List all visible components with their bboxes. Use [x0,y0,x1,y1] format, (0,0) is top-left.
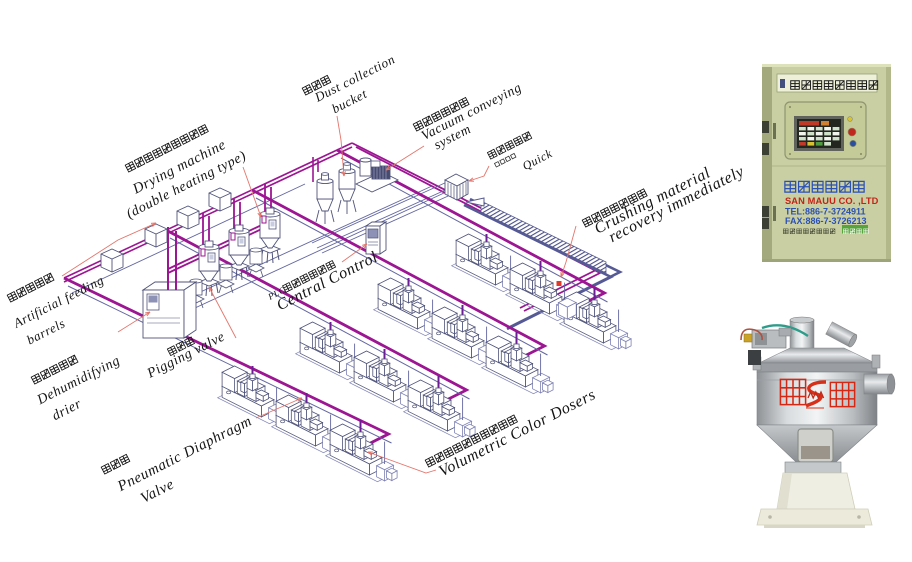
svg-text:TEL:886-7-3724911: TEL:886-7-3724911 [785,207,866,217]
svg-text:SAN MAUU CO. ,LTD: SAN MAUU CO. ,LTD [785,196,879,206]
svg-text:FAX:886-7-3726213: FAX:886-7-3726213 [785,216,867,226]
